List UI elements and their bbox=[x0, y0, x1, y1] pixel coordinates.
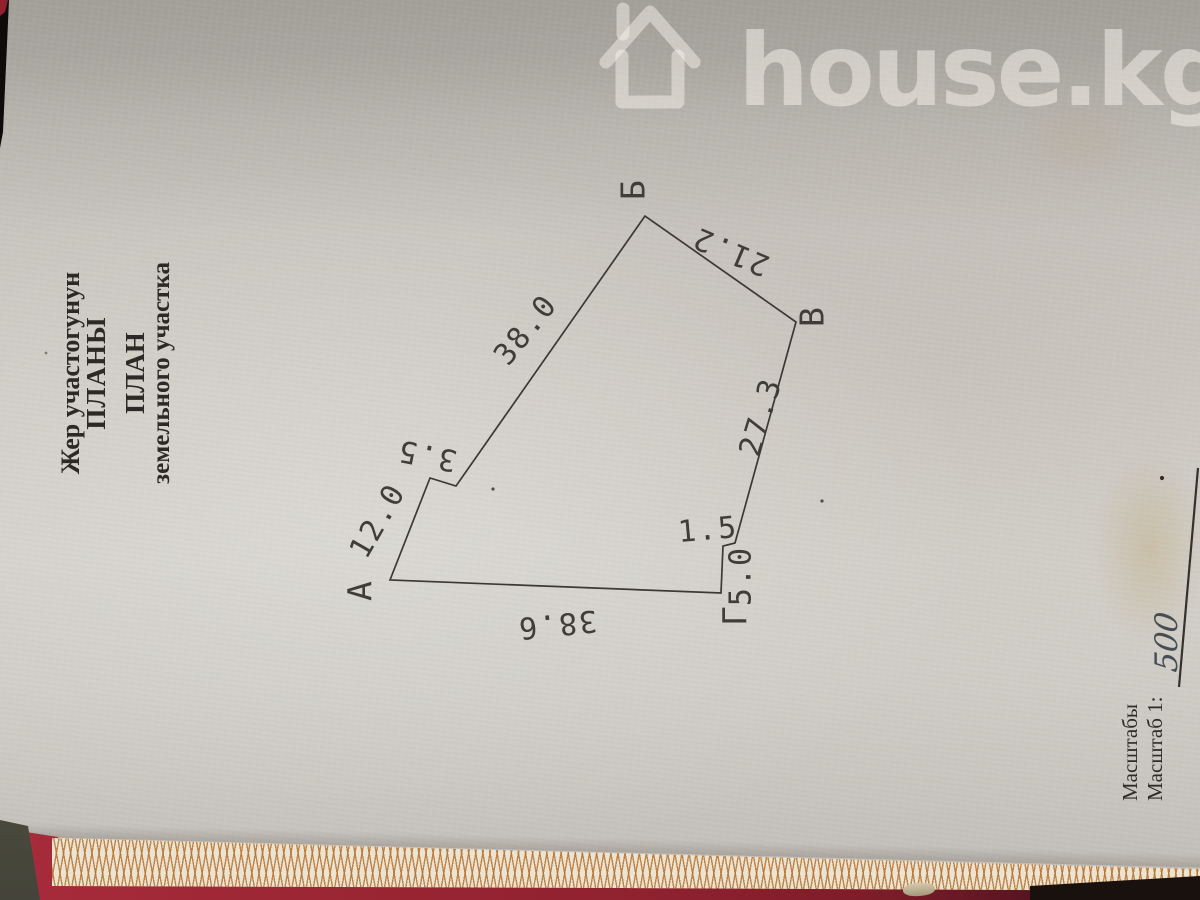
photo-of-plan-document: house.kg Жер участогунун ПЛАНЫ ПЛАН земе… bbox=[0, 0, 1200, 900]
paper-speck bbox=[820, 499, 823, 502]
vertex-label-a: А bbox=[341, 581, 380, 601]
vertex-label-v: В bbox=[793, 307, 832, 327]
paper-speck bbox=[491, 487, 494, 490]
paper-speck bbox=[1160, 476, 1164, 480]
scale-line-2: Масштаб 1: bbox=[1143, 683, 1168, 801]
paper-speck bbox=[45, 352, 48, 355]
dimension-label-1-5: 1.5 bbox=[676, 510, 739, 550]
vertex-label-b: Б bbox=[614, 180, 653, 200]
vertex-label-g: Г bbox=[716, 606, 755, 626]
scale-line-1: Масштабы bbox=[1118, 683, 1143, 801]
scale-block: Масштабы Масштаб 1: bbox=[1118, 683, 1168, 801]
handwritten-scale-value: 500 bbox=[1149, 610, 1185, 674]
plan-drawing bbox=[0, 0, 1200, 900]
dimension-label-5-0: 5.0 bbox=[724, 546, 759, 606]
